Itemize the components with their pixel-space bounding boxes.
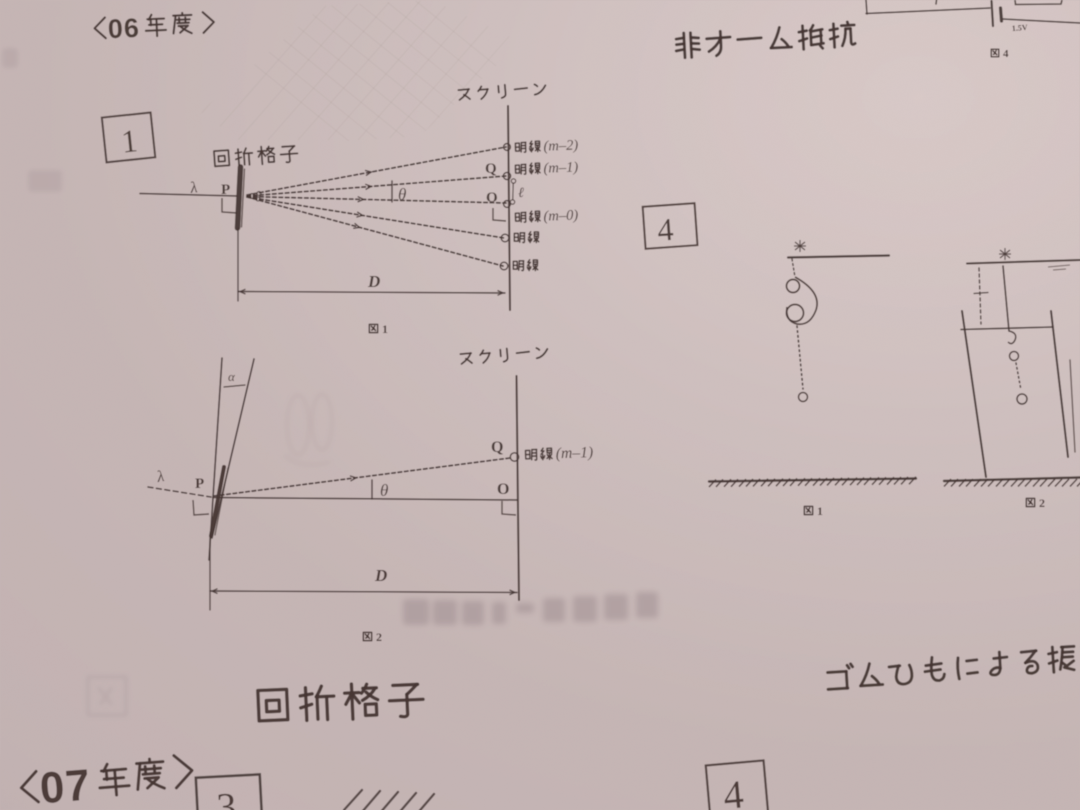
svg-text:07: 07 (38, 761, 93, 810)
svg-text:4: 4 (721, 771, 745, 810)
svg-text:D: D (374, 566, 387, 585)
svg-text:(m–0): (m–0) (543, 207, 578, 224)
svg-text:D: D (367, 272, 380, 291)
svg-text:2: 2 (376, 630, 382, 644)
svg-text:P: P (221, 182, 230, 198)
svg-text:O: O (497, 481, 509, 498)
svg-text:3: 3 (215, 784, 237, 810)
svg-text:1: 1 (382, 322, 388, 336)
svg-text:(m–1): (m–1) (555, 444, 593, 462)
svg-text:α: α (228, 369, 236, 384)
svg-text:(m–2): (m–2) (543, 137, 578, 154)
svg-text:1: 1 (817, 504, 823, 518)
svg-text:θ: θ (398, 185, 406, 204)
svg-text:Q: Q (485, 161, 497, 177)
svg-text:O: O (486, 190, 498, 206)
svg-text:ℓ: ℓ (518, 186, 524, 201)
svg-text:2: 2 (1039, 496, 1045, 510)
svg-text:4: 4 (1003, 48, 1009, 60)
svg-text:4: 4 (656, 211, 674, 248)
svg-text:θ: θ (380, 481, 388, 500)
svg-text:06: 06 (107, 13, 140, 44)
svg-text:Q: Q (491, 439, 503, 456)
svg-text:P: P (195, 476, 204, 492)
svg-text:(m–1): (m–1) (543, 159, 578, 176)
svg-text:1.5V: 1.5V (1012, 23, 1029, 33)
